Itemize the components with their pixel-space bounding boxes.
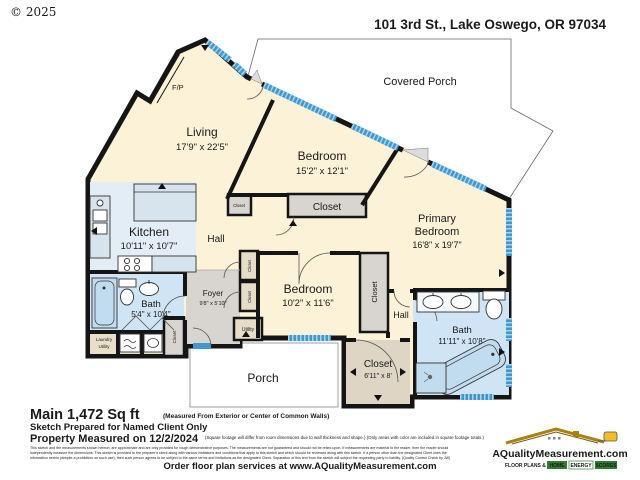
logo-dot: [548, 437, 551, 440]
hall-right-label: Hall: [393, 310, 409, 320]
closet-hall-dims: 6'11" x 8': [364, 373, 392, 380]
toilet-bowl: [121, 289, 134, 305]
logo: AQualityMeasurement.com FLOOR PLANS & HO…: [492, 429, 627, 469]
kitchen-island: [134, 184, 196, 221]
living-dims: 17'9" x 22'5": [176, 142, 228, 153]
laundry-label-1: Laundry: [96, 337, 113, 342]
dryer: [144, 334, 162, 352]
shower-head: [428, 375, 432, 379]
logo-chimney: [573, 431, 579, 437]
toilet-tank: [119, 279, 136, 287]
logo-dot: [558, 437, 561, 440]
closet-left-upper-label: Closet: [247, 259, 252, 272]
bath-left-dims: 5'4" x 10'4": [131, 310, 171, 319]
floor-plan-page: © 2025 101 3rd St., Lake Oswego, OR 9703…: [0, 0, 640, 480]
primary-label-2: Bedroom: [415, 226, 460, 238]
logo-scores-label: SCORES: [595, 463, 617, 469]
hall-left-label: Hall: [207, 234, 224, 245]
closet-hall-label: Closet: [364, 359, 393, 370]
foyer-floor: [186, 270, 240, 344]
disclaimer-line-2: independently measure the dimensions. Th…: [30, 451, 447, 455]
closet-left-lower-label: Closet: [247, 290, 252, 303]
client-line: Sketch Prepared for Named Client Only: [30, 422, 208, 433]
bathtub: [92, 278, 117, 328]
floor-plan-canvas: © 2025 101 3rd St., Lake Oswego, OR 9703…: [0, 0, 640, 480]
stove-burner: [124, 265, 129, 270]
logo-tape-measure: [604, 432, 617, 441]
bath-left-label: Bath: [141, 299, 161, 310]
foyer-label: Foyer: [203, 289, 224, 298]
toilet-bowl: [486, 299, 502, 319]
living-label: Living: [186, 125, 217, 139]
primary-label-1: Primary: [418, 213, 456, 225]
copyright-label: © 2025: [10, 5, 56, 19]
sqft-note: (Measured From Exterior or Center of Com…: [163, 413, 329, 420]
kitchen-disposal: [97, 200, 103, 206]
kitchen-label: Kitchen: [129, 225, 169, 239]
bath-right-dims: 11'11" x 10'8": [438, 337, 485, 346]
measured-note: (Square footage will differ from room di…: [205, 435, 484, 440]
primary-dims: 16'8" x 19'7": [412, 240, 461, 250]
measured-date: Property Measured on 12/2/2024: [30, 433, 199, 445]
logo-tagline-prefix: FLOOR PLANS &: [505, 463, 546, 469]
sqft-total: Main 1,472 Sq ft: [30, 407, 140, 423]
tub-drain: [103, 287, 106, 290]
foyer-dims: 9'8" x 5'10": [199, 301, 226, 307]
bedroom-mid-dims: 15'2" x 12'1": [296, 166, 348, 177]
kitchen-sink: [93, 210, 107, 221]
closet-strip-label: Closet: [370, 280, 379, 302]
closet-bath-label: Closet: [172, 330, 177, 344]
utility-label: Utility: [242, 327, 255, 333]
kitchen-dims: 10'11" x 10'7": [121, 241, 178, 252]
logo-energy-label: ENERGY: [570, 463, 592, 469]
disclaimer-line-1: This sketch and the measurements shown h…: [30, 446, 448, 450]
stove-burner: [134, 265, 139, 270]
logo-home-label: HOME: [550, 463, 566, 469]
address-label: 101 3rd St., Lake Oswego, OR 97034: [374, 17, 606, 32]
logo-dot: [553, 437, 556, 440]
kitchen-counter-right: [152, 256, 196, 272]
fireplace-label: F/P: [172, 83, 184, 92]
closet-bedroom-mid-label: Closet: [313, 202, 342, 213]
covered-porch-label: Covered Porch: [383, 76, 456, 88]
bedroom-lower-label: Bedroom: [284, 282, 333, 296]
washer: [120, 334, 140, 352]
closet-living-label: Closet: [233, 203, 246, 208]
disclaimer-line-3: information herein (despite a prohibitio…: [30, 456, 450, 460]
bedroom-lower-dims: 10'2" x 11'6": [282, 298, 333, 309]
porch-label: Porch: [247, 371, 278, 385]
laundry-label-2: Utility: [99, 344, 111, 349]
stove-burner: [134, 258, 139, 263]
bath-right-label: Bath: [452, 325, 472, 336]
stove-burner: [124, 258, 129, 263]
sink: [140, 283, 159, 296]
order-line: Order floor plan services at www.AQualit…: [163, 461, 436, 472]
sink: [423, 296, 443, 309]
bedroom-mid-label: Bedroom: [298, 149, 347, 163]
logo-name: AQualityMeasurement.com: [492, 448, 627, 460]
sink: [451, 296, 471, 309]
